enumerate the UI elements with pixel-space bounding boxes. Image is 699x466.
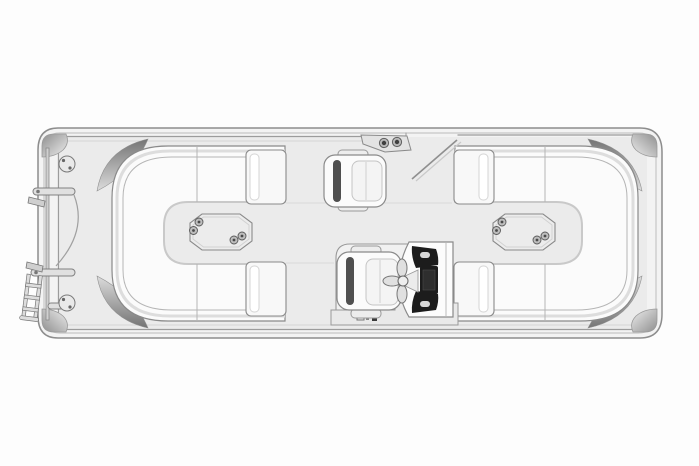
cup-holder-center [544,235,547,238]
deck-speaker-lower [59,295,75,311]
cup-holder-center [501,221,504,224]
speaker-screw [62,298,65,301]
boat-floorplan-svg [0,0,699,466]
deck-speaker-upper [59,156,75,172]
stern-lounge-armrest-top-pad [479,154,488,200]
cup-holder-center [536,239,539,242]
cup-holder-center [495,229,498,232]
boat-floorplan-page [0,0,699,466]
helm-group [331,242,458,325]
wheel-spoke-top [397,259,407,277]
wheel-hub [398,276,408,286]
speaker-screw [68,166,71,169]
wheel-spoke-bottom [397,285,407,303]
stern-table [493,214,556,250]
console-dash-pill-bottom [420,301,430,307]
console-dash-pill-top [420,252,430,258]
cup-holder-center [192,229,195,232]
stern-lounge-armrest-bottom-pad [479,266,488,312]
co-captain-chair [324,150,386,211]
chair-cushion [352,161,382,201]
bow-table [190,214,253,250]
cup-holder-center [198,221,201,224]
speaker-screw [68,305,71,308]
gate-arm-lower-pin [34,271,38,275]
cup-holder-center [241,235,244,238]
chair-backrest [333,160,341,202]
speaker-screw [62,159,65,162]
bow-lounge-armrest-top-pad [250,154,259,200]
caddy-cup-holder-center [382,141,386,145]
bow-lounge-armrest-bottom-pad [250,266,259,312]
caddy-cup-holder-center [395,140,399,144]
gate-arm-upper-pin [36,190,40,194]
chair-backrest [346,257,354,305]
bow-gate-rail [46,148,49,320]
console-screen-inner [423,270,435,290]
cup-holder-center [233,239,236,242]
